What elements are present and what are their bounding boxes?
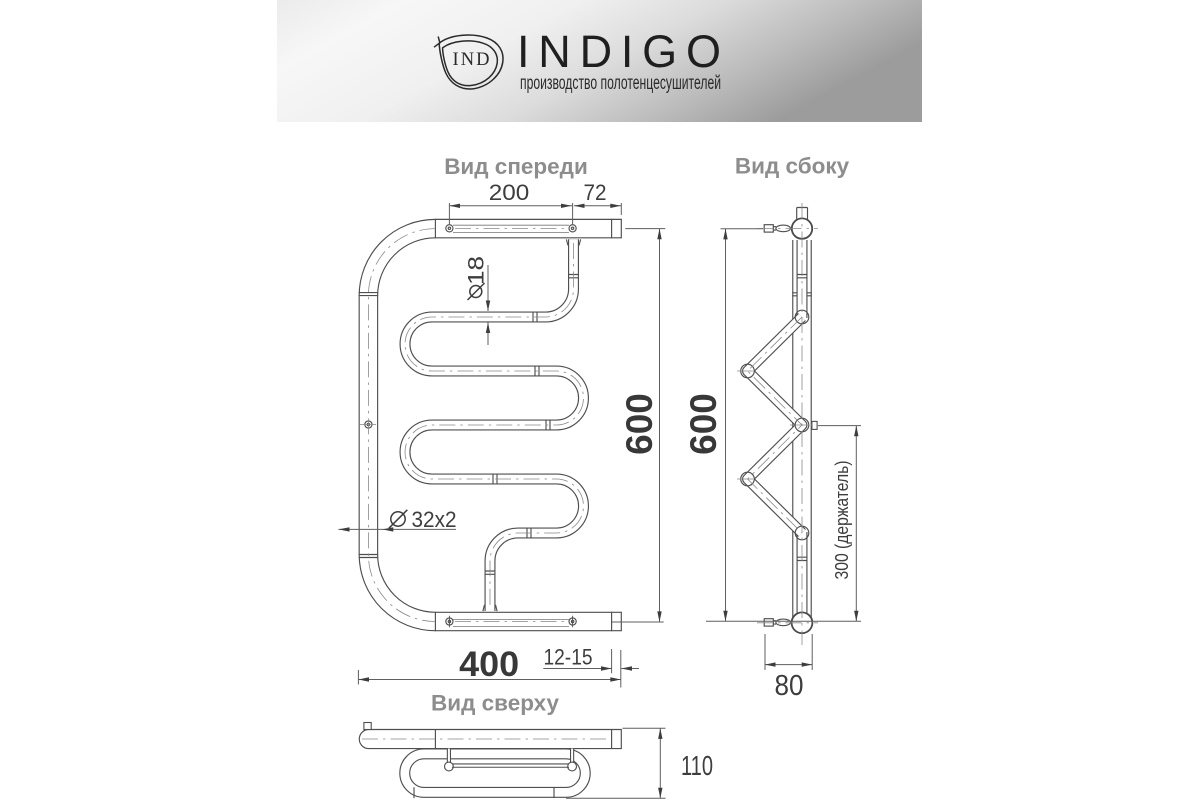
svg-text:110: 110 xyxy=(681,750,713,781)
svg-text:производство полотенцесушителе: производство полотенцесушителей xyxy=(520,73,721,94)
svg-text:18: 18 xyxy=(464,256,489,285)
svg-text:32x2: 32x2 xyxy=(412,507,457,532)
svg-text:80: 80 xyxy=(775,670,804,702)
svg-text:72: 72 xyxy=(584,180,607,205)
svg-text:Вид сверху: Вид сверху xyxy=(431,691,559,716)
svg-text:600: 600 xyxy=(683,393,724,455)
svg-text:IND: IND xyxy=(453,50,492,70)
svg-text:Вид сбоку: Вид сбоку xyxy=(735,154,850,179)
svg-text:Вид спереди: Вид спереди xyxy=(444,154,588,179)
svg-text:600: 600 xyxy=(619,393,660,455)
svg-text:300 (держатель): 300 (держатель) xyxy=(831,461,852,580)
svg-text:12-15: 12-15 xyxy=(544,644,593,669)
svg-text:200: 200 xyxy=(489,180,530,205)
svg-text:400: 400 xyxy=(459,645,519,684)
